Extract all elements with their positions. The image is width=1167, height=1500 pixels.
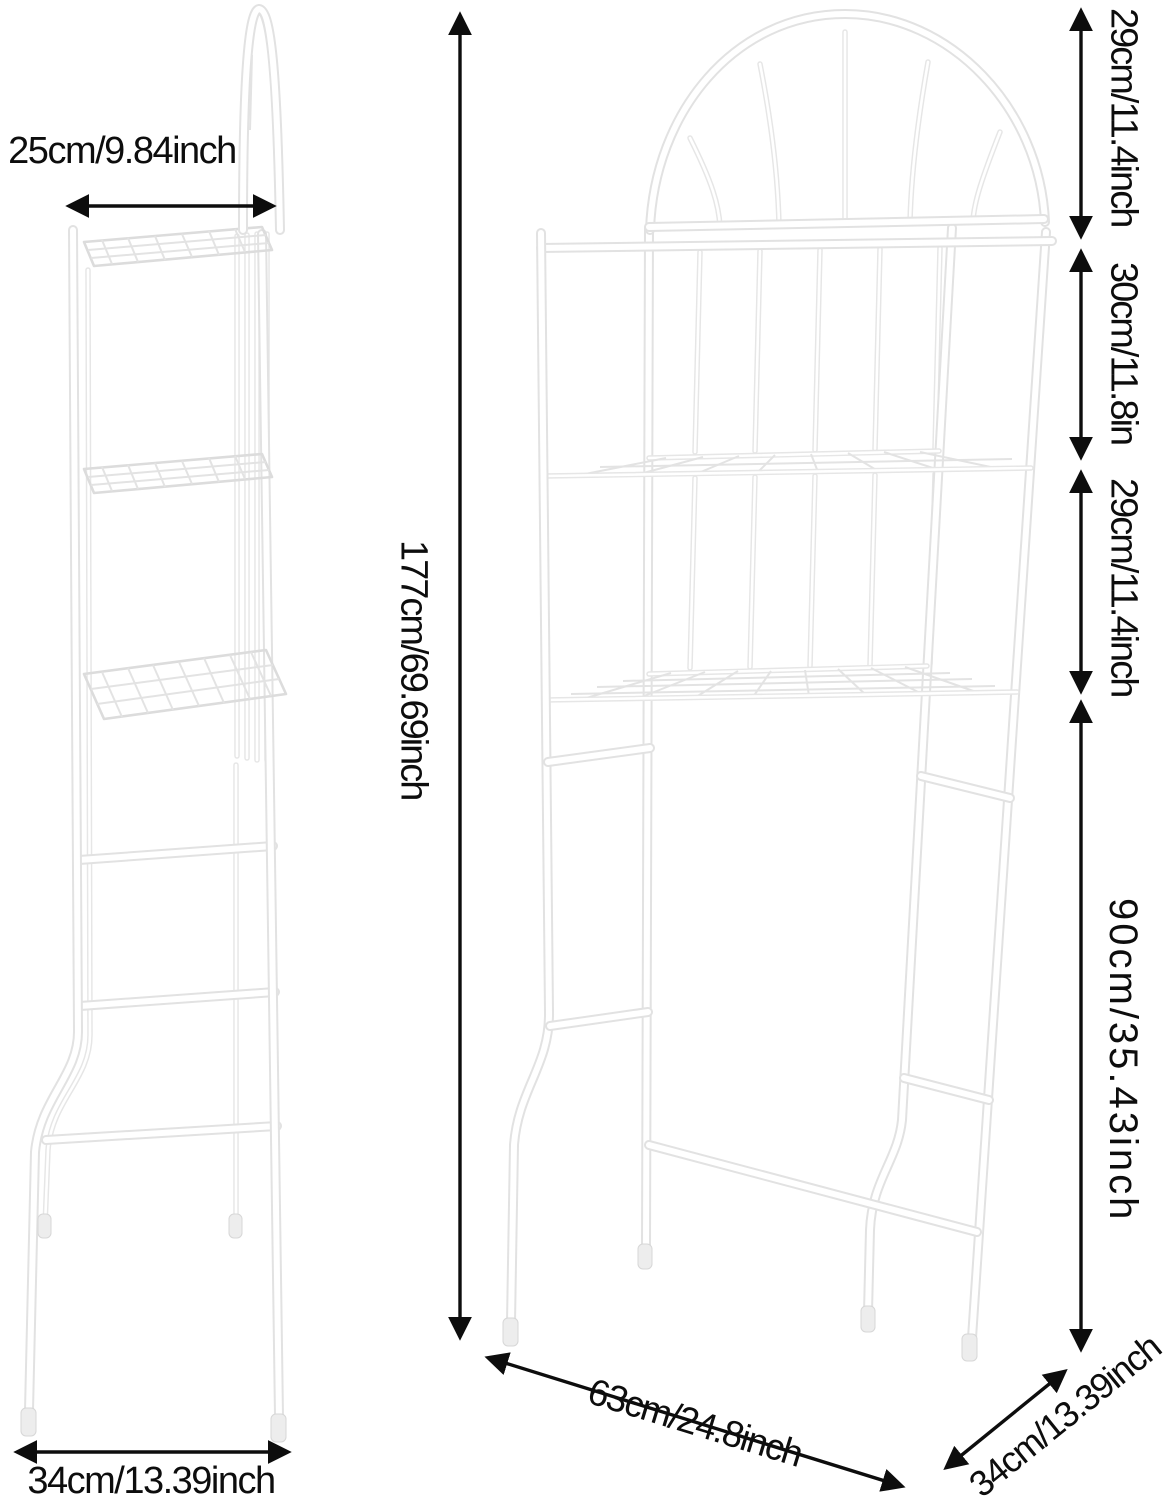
dim-arch-section-height: 29cm/11.4inch — [1102, 8, 1145, 226]
side-front-post — [29, 230, 78, 1410]
side-foot-front — [21, 1408, 36, 1436]
front-foot-left — [503, 1318, 518, 1346]
dim-lower-section-height: 29cm/11.4inch — [1102, 478, 1145, 696]
side-far-front-leg — [45, 270, 90, 1226]
dim-middle-section-height: 30cm/11.8in — [1102, 262, 1145, 444]
front-shelf-middle — [546, 451, 1031, 476]
dim-side-top-depth: 25cm/9.84inch — [2, 130, 242, 173]
side-shelf-middle — [84, 454, 272, 493]
side-foot-far-back — [229, 1214, 242, 1238]
product-dimension-diagram: 25cm/9.84inch 177cm/69.69inch 29cm/11.4i… — [0, 0, 1167, 1500]
front-foot-back-right — [861, 1306, 875, 1332]
front-back-right-leg — [868, 228, 952, 1312]
front-shelf-bottom — [545, 666, 1017, 700]
side-view-rack — [21, 9, 286, 1442]
rack-illustration — [0, 0, 1167, 1500]
side-foot-back — [271, 1414, 286, 1442]
dim-total-height: 177cm/69.69inch — [392, 540, 435, 799]
front-foot-back-left — [638, 1244, 652, 1269]
dim-base-depth-left: 34cm/13.39inch — [5, 1460, 297, 1500]
dim-clearance-height: 90cm/35.43inch — [1100, 898, 1145, 1222]
front-view-rack — [503, 14, 1052, 1361]
side-foot-far-front — [38, 1214, 51, 1238]
front-foot-right — [962, 1334, 977, 1361]
